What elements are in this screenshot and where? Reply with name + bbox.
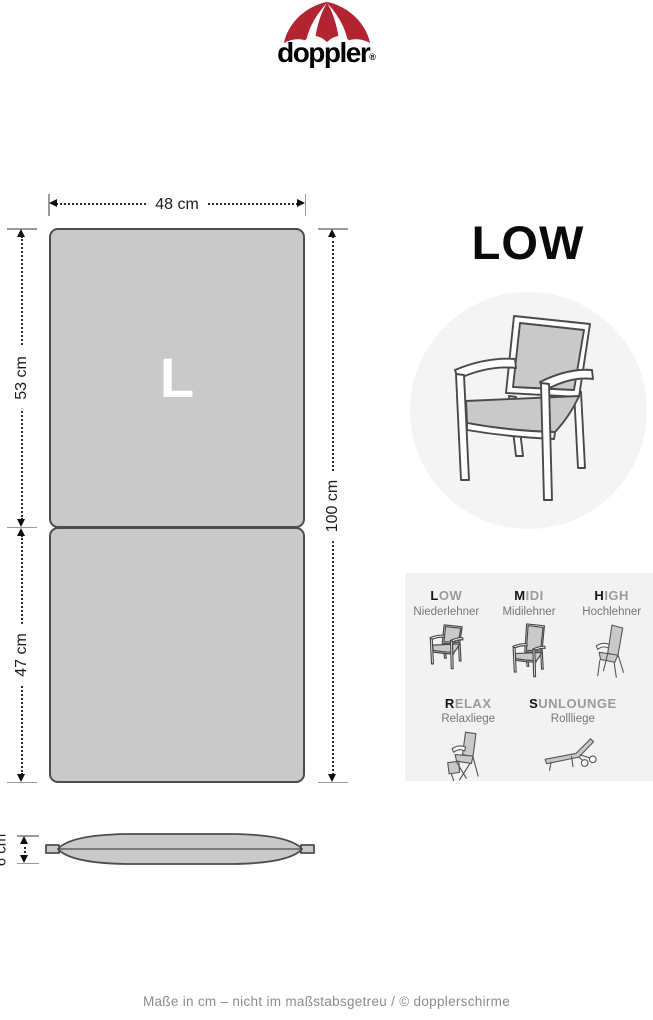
- registered-mark: ®: [369, 52, 376, 62]
- dim-upper-height-label: 53 cm: [13, 347, 31, 409]
- chair-midi-icon: [511, 623, 547, 679]
- cushion-seat-section: [49, 527, 305, 783]
- dim-thickness: 6 cm: [17, 835, 37, 864]
- arrow-left-icon: [49, 199, 57, 207]
- arrow-down-icon: [328, 774, 336, 782]
- arrow-down-icon: [20, 855, 28, 863]
- arrow-up-icon: [17, 229, 25, 237]
- dim-width: 48 cm: [48, 194, 306, 216]
- arrow-right-icon: [297, 199, 305, 207]
- type-item-relax: RELAX Relaxliege: [441, 696, 495, 794]
- type-subtitle: Niederlehner: [405, 606, 488, 618]
- dim-total-height-label: 100 cm: [324, 470, 342, 540]
- panel-row-1: LOW Niederlehner MIDI Midilehner HIGH Ho…: [405, 588, 653, 688]
- chair-low-illustration-icon: [448, 308, 600, 510]
- dim-thickness-label: 6 cm: [0, 833, 10, 866]
- type-label: MIDI: [488, 588, 571, 604]
- arrow-up-icon: [20, 836, 28, 844]
- product-type-title: LOW: [408, 219, 648, 266]
- dim-total-height: 100 cm: [323, 228, 343, 783]
- type-subtitle: Rollliege: [529, 713, 617, 725]
- type-item-high: HIGH Hochlehner: [570, 588, 653, 688]
- cushion-back-section: L: [49, 228, 305, 528]
- chair-low-icon: [428, 623, 465, 671]
- chair-high-icon: [590, 623, 634, 683]
- type-item-midi: MIDI Midilehner: [488, 588, 571, 688]
- brand-wordmark: doppler®: [277, 39, 376, 67]
- type-label: RELAX: [441, 696, 495, 712]
- brand-logo: doppler®: [0, 0, 653, 67]
- footer-note: Maße in cm – nicht im maßstabsgetreu / ©…: [0, 994, 653, 1009]
- size-letter: L: [160, 350, 194, 406]
- type-subtitle: Relaxliege: [441, 713, 495, 725]
- type-subtitle: Hochlehner: [570, 606, 653, 618]
- type-label: SUNLOUNGE: [529, 696, 617, 712]
- arrow-up-icon: [328, 229, 336, 237]
- cushion-side-view: [44, 827, 316, 873]
- type-subtitle: Midilehner: [488, 606, 571, 618]
- type-label: HIGH: [570, 588, 653, 604]
- arrow-down-icon: [17, 519, 25, 527]
- arrow-down-icon: [17, 774, 25, 782]
- sunlounge-icon: [542, 730, 604, 774]
- panel-row-2: RELAX Relaxliege SUNLOUNGE: [405, 696, 653, 794]
- product-diagram-page: doppler® 48 cm 53 cm 47 cm 100 cm L: [0, 0, 653, 1020]
- dim-width-label: 48 cm: [148, 196, 206, 214]
- type-item-sunlounge: SUNLOUNGE Rollliege: [529, 696, 617, 794]
- chair-circle: [410, 292, 647, 529]
- dim-upper-height: 53 cm: [12, 228, 32, 528]
- dim-lower-height: 47 cm: [12, 527, 32, 783]
- arrow-up-icon: [17, 528, 25, 536]
- chair-type-panel: LOW Niederlehner MIDI Midilehner HIGH Ho…: [405, 573, 653, 781]
- type-item-low: LOW Niederlehner: [405, 588, 488, 688]
- type-label: LOW: [405, 588, 488, 604]
- dim-lower-height-label: 47 cm: [13, 624, 31, 686]
- chair-relax-icon: [446, 730, 491, 788]
